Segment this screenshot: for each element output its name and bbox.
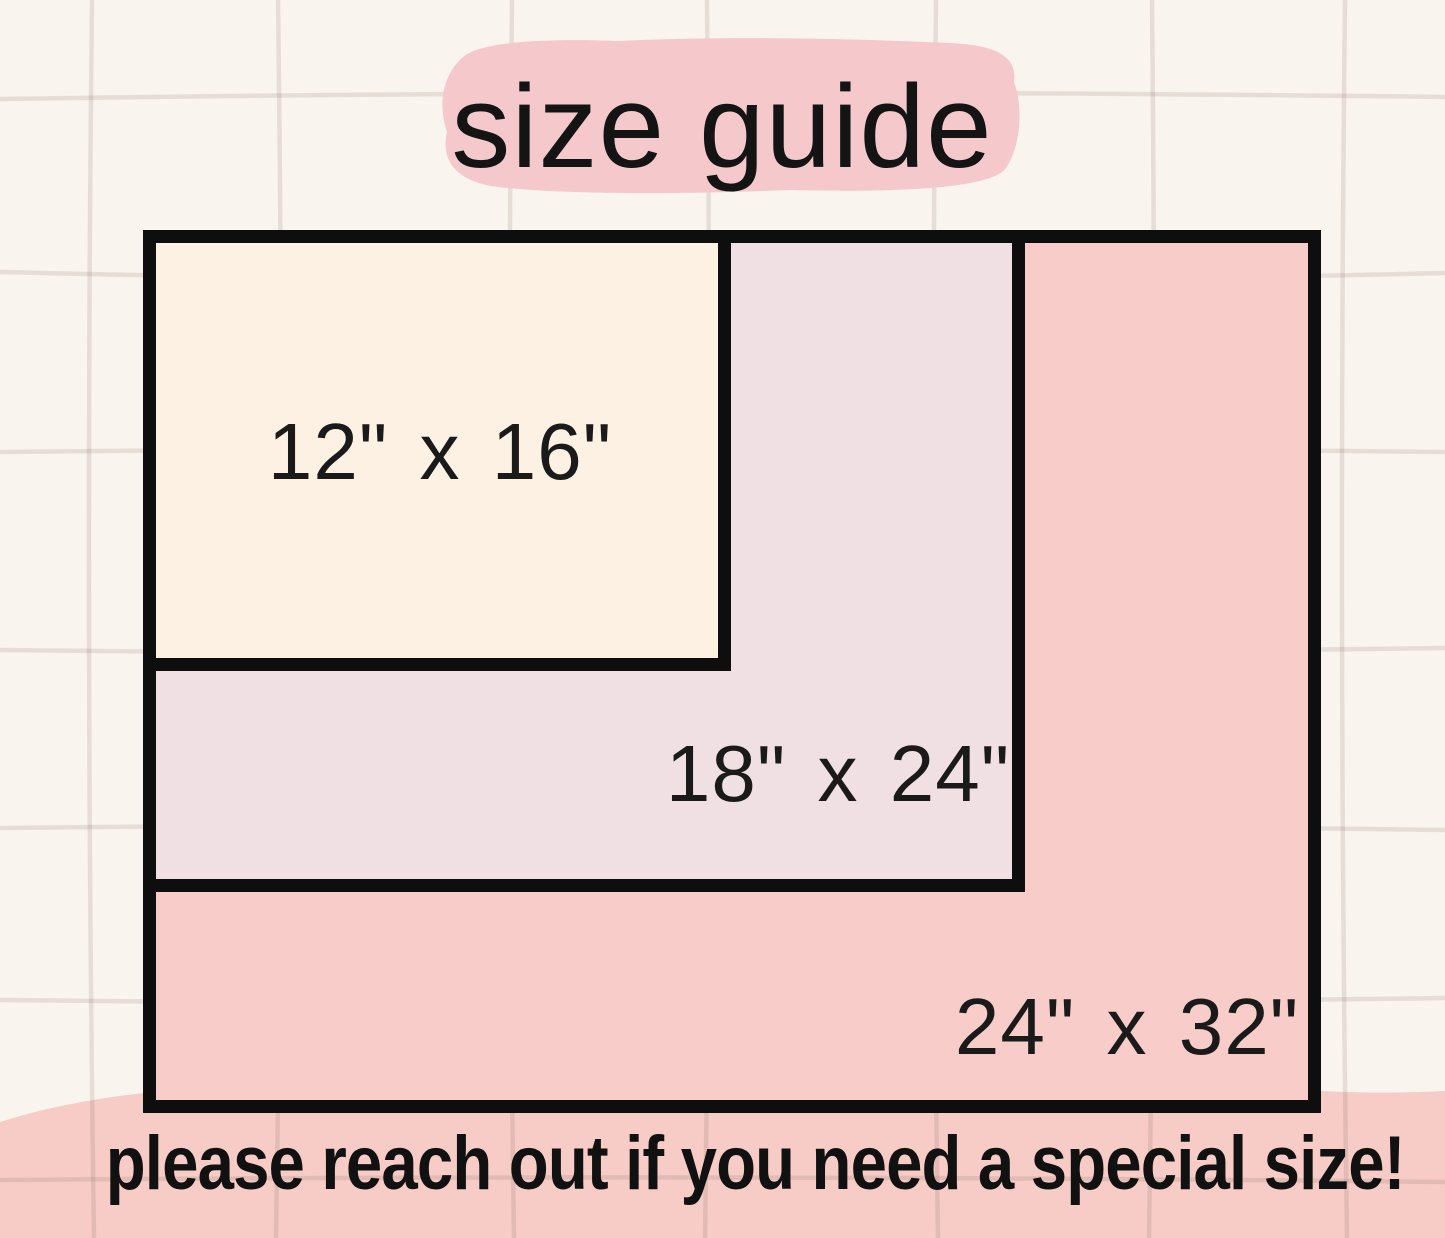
size-label-18x24: 18" x 24" <box>666 734 1010 814</box>
footer-note-text: please reach out if you need a special s… <box>106 1126 1405 1202</box>
size-label-24x32: 24" x 32" <box>955 987 1299 1067</box>
size-guide-graphic: size guide 12" x 16" 18" x 24" 24" x 32"… <box>0 0 1445 1238</box>
size-label-12x16: 12" x 16" <box>268 412 612 492</box>
footer-note: please reach out if you need a special s… <box>0 1126 1445 1202</box>
page-title: size guide <box>451 58 992 197</box>
